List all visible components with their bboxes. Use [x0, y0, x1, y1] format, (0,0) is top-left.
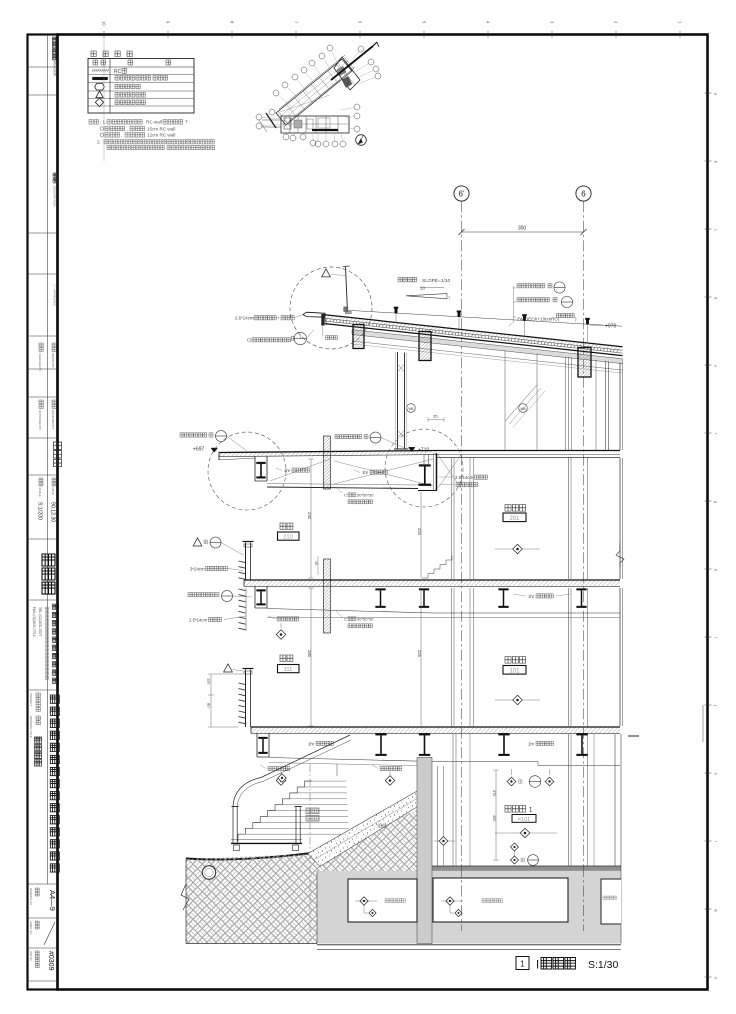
- svg-text:35: 35: [433, 414, 438, 419]
- svg-text:d: d: [714, 297, 718, 299]
- svg-text:15cm RC wall: 15cm RC wall: [147, 126, 175, 131]
- svg-text:PROJECT: PROJECT: [29, 693, 33, 706]
- svg-text:m: m: [714, 909, 718, 912]
- svg-text:DRAWING NO: DRAWING NO: [29, 888, 33, 905]
- svg-text:C): C): [247, 338, 252, 343]
- svg-text:2.6*14cm: 2.6*14cm: [235, 316, 254, 321]
- svg-text:225: 225: [417, 650, 422, 658]
- svg-text:c: c: [714, 229, 718, 231]
- svg-text:3*24cm: 3*24cm: [190, 566, 205, 571]
- svg-text:+697: +697: [193, 447, 204, 453]
- svg-text:SLOPE=1/10: SLOPE=1/10: [422, 278, 450, 284]
- svg-text:2W DECK+10cmRC(: 2W DECK+10cmRC(: [517, 316, 560, 321]
- svg-text:W6: W6: [408, 407, 413, 411]
- svg-text:2.5*14cm: 2.5*14cm: [455, 475, 474, 480]
- svg-text:T :: T :: [185, 120, 190, 125]
- svg-text:1hr: 1hr: [284, 468, 291, 473]
- svg-text:10: 10: [102, 21, 107, 26]
- svg-text:RC wall: RC wall: [146, 120, 162, 125]
- svg-text:1: 1: [448, 296, 450, 300]
- svg-text:JOB NO: JOB NO: [29, 951, 33, 961]
- svg-text:2.: 2.: [97, 140, 101, 145]
- svg-text:C: C: [344, 493, 347, 498]
- svg-text:,: ,: [127, 126, 128, 131]
- svg-text:APPROVED BY: APPROVED BY: [38, 410, 42, 430]
- svg-text:CHECKED BY: CHECKED BY: [38, 353, 42, 371]
- svg-text:6: 6: [581, 190, 586, 199]
- svg-text:300: 300: [518, 226, 527, 232]
- svg-text:n: n: [714, 977, 718, 979]
- svg-text:,: ,: [182, 140, 183, 145]
- svg-text:90.12.30: 90.12.30: [50, 502, 56, 522]
- svg-text:280: 280: [307, 650, 312, 658]
- svg-text:REVISION: REVISION: [53, 61, 57, 77]
- svg-text:SCALE: SCALE: [38, 488, 42, 497]
- svg-text:45: 45: [314, 561, 318, 565]
- svg-text:225: 225: [417, 528, 422, 536]
- svg-text:2.5*14cm: 2.5*14cm: [189, 617, 208, 622]
- svg-text:6': 6': [459, 190, 465, 199]
- svg-text:210: 210: [283, 535, 293, 541]
- svg-text:80: 80: [207, 703, 212, 708]
- svg-text:e: e: [714, 365, 718, 367]
- svg-text:201: 201: [509, 516, 520, 522]
- svg-text:400: 400: [492, 815, 496, 821]
- svg-text:j: j: [714, 704, 718, 706]
- svg-text:DRAWN BY: DRAWN BY: [51, 353, 55, 368]
- svg-text:A4—9: A4—9: [48, 890, 57, 911]
- svg-text:111: 111: [284, 667, 293, 673]
- svg-text:: 1.: : 1.: [100, 120, 106, 125]
- svg-text:DESCRIPTION: DESCRIPTION: [53, 186, 57, 207]
- svg-text:1hr: 1hr: [528, 594, 535, 599]
- svg-text:h: h: [714, 569, 718, 571]
- svg-text:C: C: [344, 617, 347, 622]
- svg-text:1: 1: [520, 960, 525, 969]
- svg-text:10: 10: [420, 286, 425, 291]
- svg-text:+970: +970: [605, 324, 616, 330]
- svg-text:12cm RC wall: 12cm RC wall: [147, 133, 175, 138]
- svg-text:S:1/30: S:1/30: [588, 959, 619, 971]
- svg-text:+710: +710: [418, 447, 429, 453]
- svg-text:1hr: 1hr: [362, 470, 369, 475]
- svg-text:DESIGNED BY: DESIGNED BY: [51, 410, 55, 429]
- svg-text:W6: W6: [520, 407, 525, 411]
- svg-text:50*50*30: 50*50*30: [357, 617, 374, 622]
- svg-text:SHEET NO: SHEET NO: [29, 921, 33, 934]
- svg-text:S:1/200: S:1/200: [37, 502, 43, 520]
- svg-text:TEL:(02)2631-5377: TEL:(02)2631-5377: [38, 607, 42, 637]
- svg-text:1hr: 1hr: [308, 741, 315, 746]
- svg-text:g: g: [714, 501, 718, 503]
- svg-text:1: 1: [299, 335, 301, 339]
- svg-text:+: +: [277, 316, 280, 321]
- svg-text:,: ,: [163, 145, 164, 150]
- svg-text:1hr: 1hr: [528, 741, 535, 746]
- svg-text:370: 370: [492, 790, 496, 796]
- svg-text:DRAWING TITLE: DRAWING TITLE: [29, 716, 33, 738]
- svg-text:110: 110: [207, 678, 212, 685]
- svg-text:101: 101: [509, 669, 520, 675]
- svg-text:230: 230: [307, 512, 312, 520]
- svg-text:FAX:(02)2630-7712: FAX:(02)2630-7712: [32, 607, 36, 637]
- svg-text:#0309: #0309: [47, 951, 54, 971]
- svg-text:50*50*30: 50*50*30: [357, 493, 374, 498]
- svg-text:=101: =101: [518, 817, 531, 823]
- svg-text:I: I: [536, 960, 539, 972]
- svg-text:k: k: [714, 773, 718, 775]
- svg-text:□ □ APPROVED: □ □ APPROVED: [53, 284, 57, 307]
- svg-text:b: b: [714, 161, 718, 163]
- svg-text:RC: RC: [114, 69, 122, 75]
- svg-text:,: ,: [121, 133, 122, 138]
- svg-text:DATE: DATE: [51, 488, 55, 495]
